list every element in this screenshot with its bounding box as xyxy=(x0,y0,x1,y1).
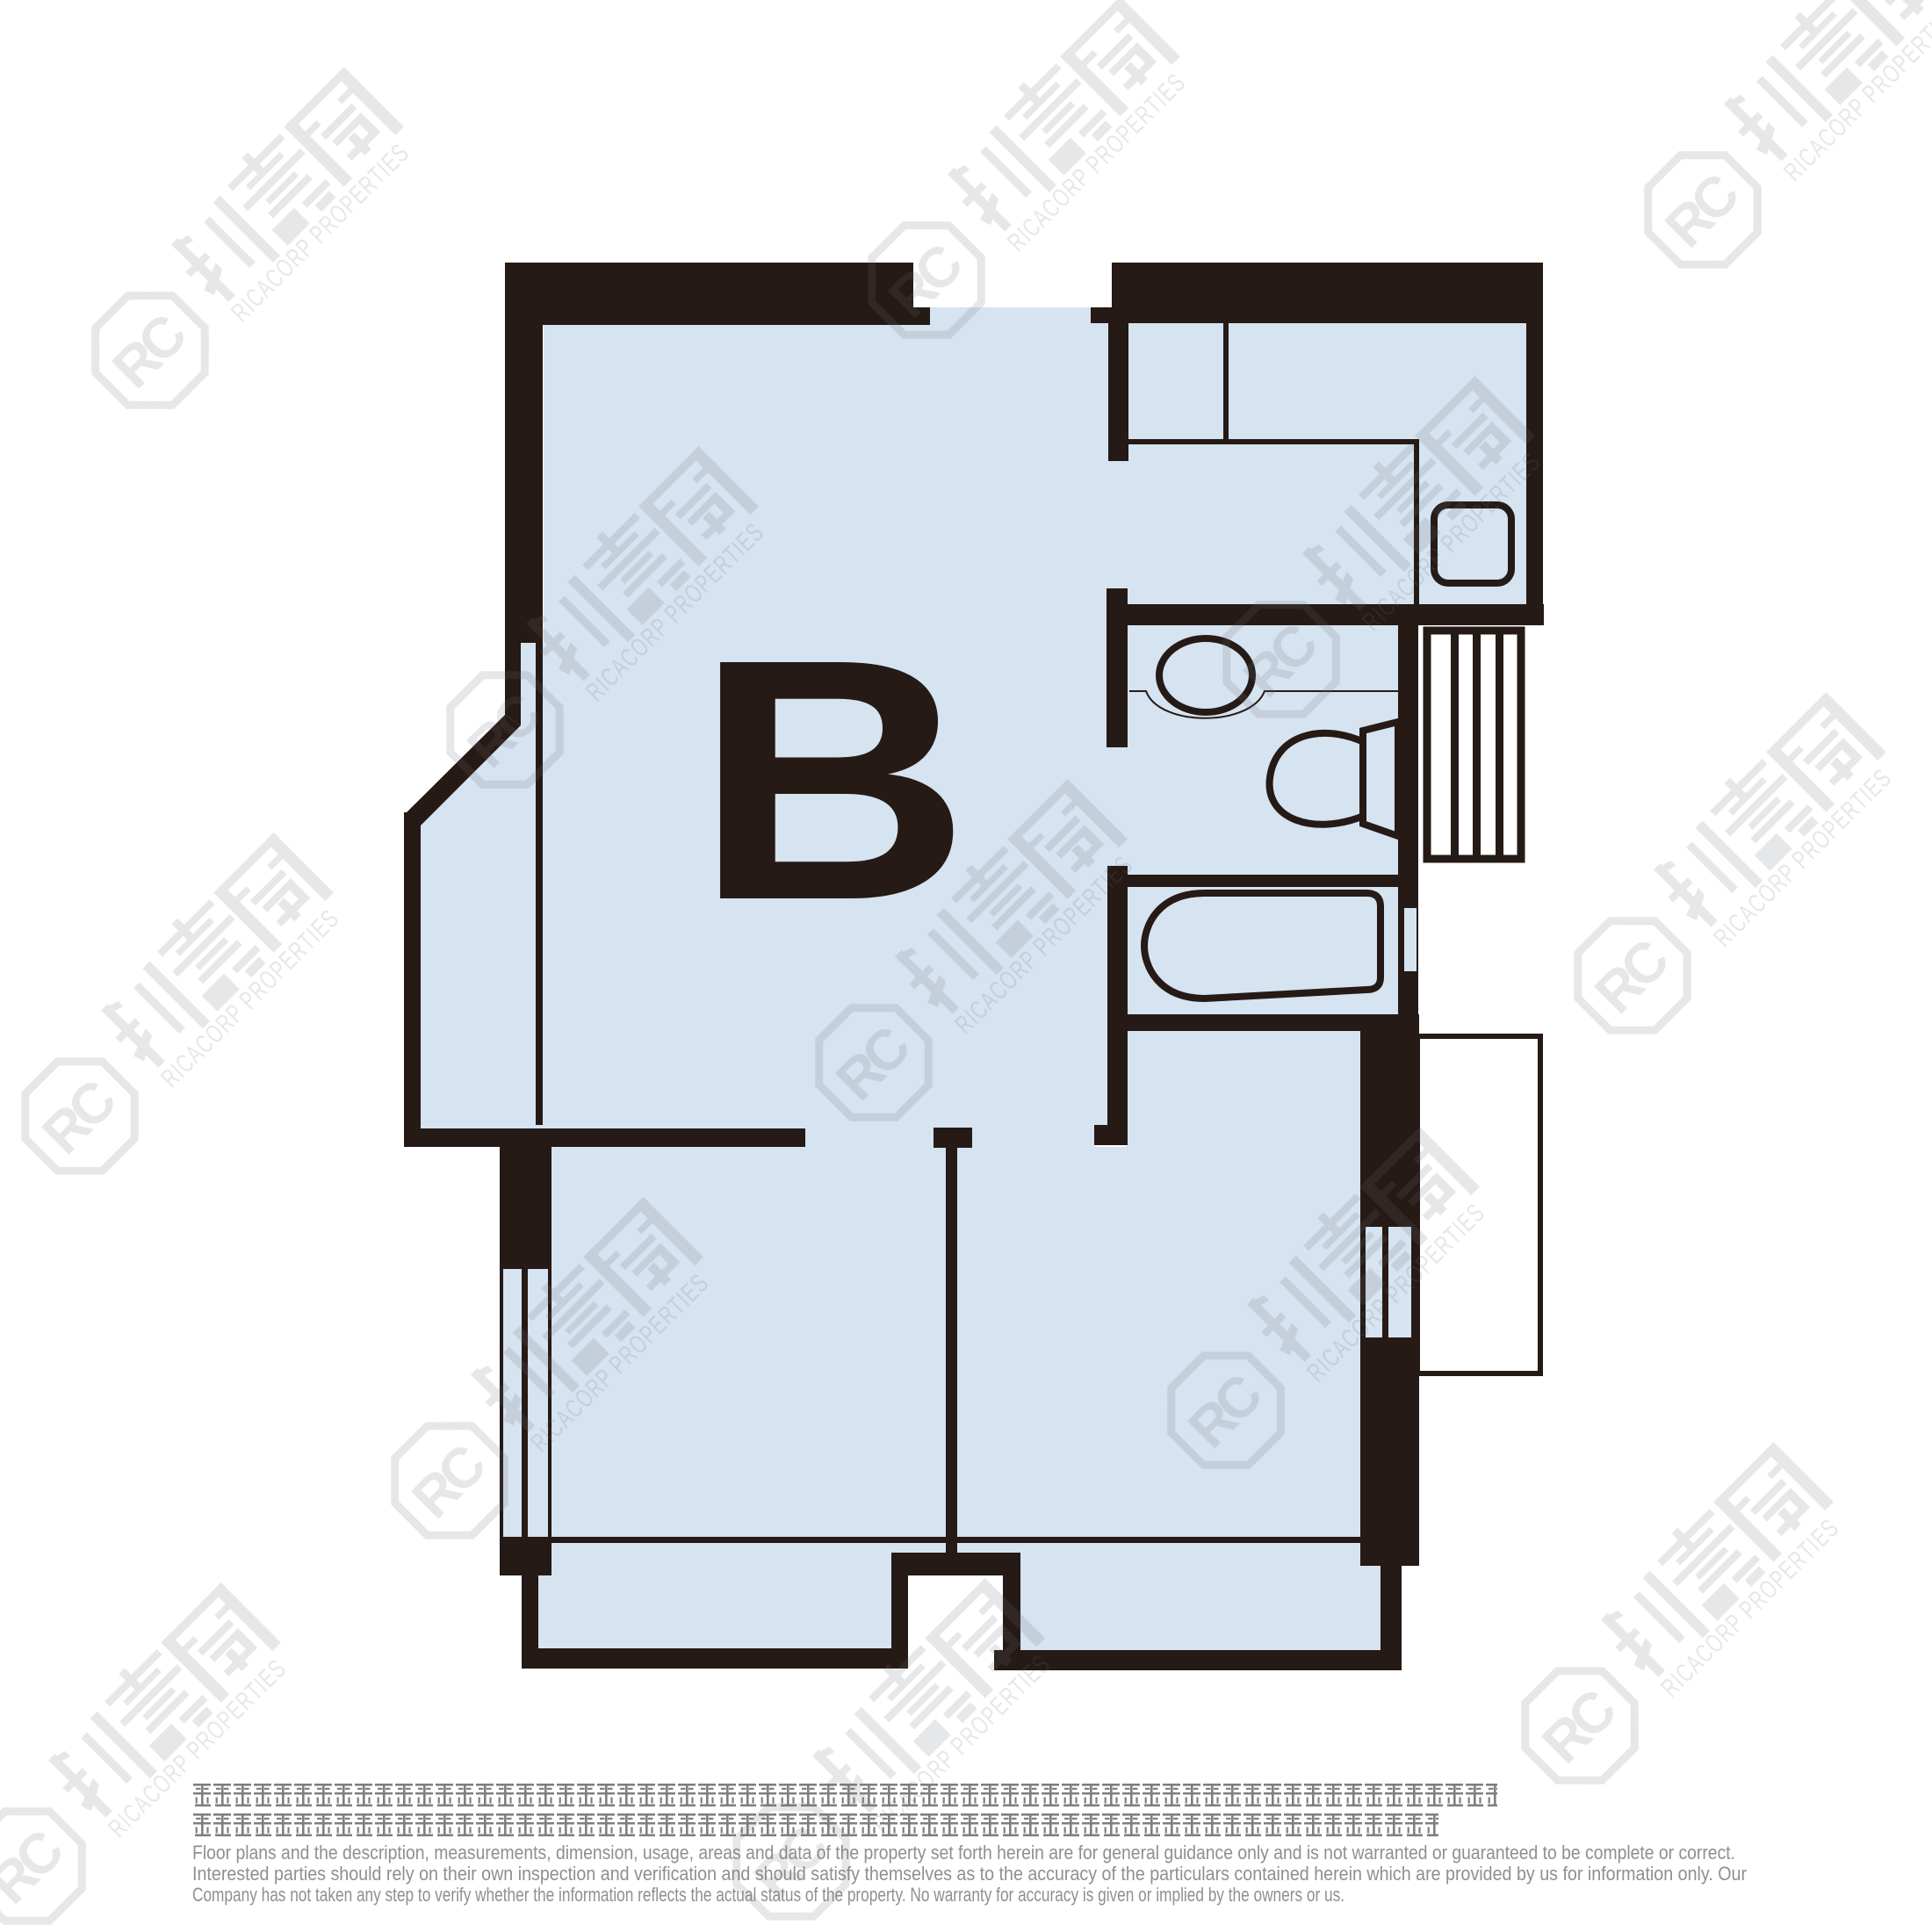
svg-text:B: B xyxy=(695,588,970,971)
svg-text:Floor plans and the descriptio: Floor plans and the description, measure… xyxy=(192,1842,1735,1864)
svg-text:Interested parties should rely: Interested parties should rely on their … xyxy=(192,1863,1747,1885)
